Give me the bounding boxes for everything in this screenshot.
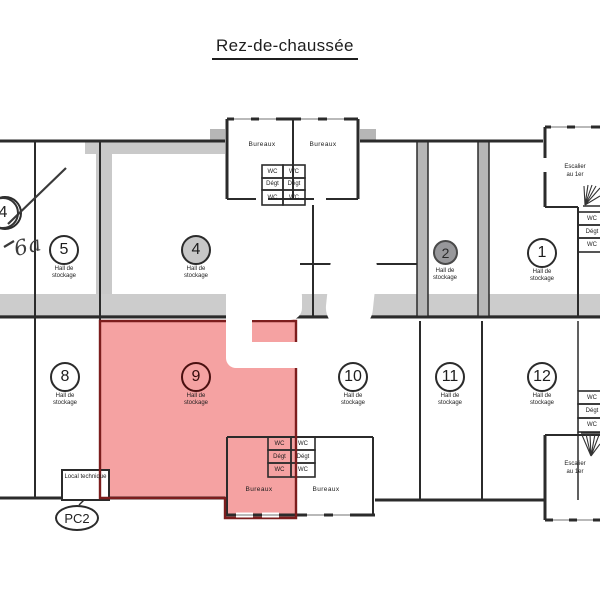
hall-label-8: Hall de stockage	[46, 393, 84, 407]
bureaux-label-bottom-left: Bureaux	[233, 486, 285, 493]
hall-label-2: Hall de stockage	[426, 268, 464, 282]
hall-label-5: Hall de stockage	[45, 266, 83, 280]
wc-cell: WC	[291, 437, 315, 450]
stairs-label-bottom-right: Escalier au 1er	[552, 461, 598, 476]
handwritten-note: 6a	[12, 231, 45, 261]
wc-cell: WC	[283, 190, 305, 205]
hall-label-1: Hall de stockage	[523, 269, 561, 283]
watermark-shape	[226, 342, 312, 368]
watermark-shape	[324, 244, 380, 332]
room-circle-12: 12	[527, 362, 557, 392]
hall-label-12: Hall de stockage	[523, 393, 561, 407]
wc-cell: WC	[578, 418, 600, 432]
stairs-label-line2: au 1er	[552, 469, 598, 477]
deg-cell: Dégt	[578, 404, 600, 418]
wc-cell: WC	[268, 437, 291, 450]
hall-label-11: Hall de stockage	[431, 393, 469, 407]
wc-cell: WC	[578, 238, 600, 252]
room-circle-4: 4	[181, 235, 211, 265]
room-circle-4-crossed: 4	[0, 197, 19, 229]
wc-cell: WC	[262, 165, 283, 178]
stairs-label-line1: Escalier	[552, 164, 598, 172]
stairs-label-top-right: Escalier au 1er	[552, 164, 598, 179]
stairs-label-line2: au 1er	[552, 172, 598, 180]
room-circle-1: 1	[527, 238, 557, 268]
room-circle-5: 5	[49, 235, 79, 265]
room-circle-10: 10	[338, 362, 368, 392]
room-circle-8: 8	[50, 362, 80, 392]
wall-shading-left-vertical	[96, 142, 112, 316]
hall-label-9: Hall de stockage	[177, 393, 215, 407]
bureaux-label-top-right: Bureaux	[297, 141, 349, 148]
wall-shading-room2-left	[417, 142, 428, 316]
local-technique-label: Local technique	[62, 474, 109, 482]
wall-shading-block-right	[360, 129, 376, 141]
deg-cell: Dégt	[578, 225, 600, 238]
wc-cell: WC	[283, 165, 305, 178]
hall-label-4: Hall de stockage	[177, 266, 215, 280]
room-circle-9: 9	[181, 362, 211, 392]
bureaux-label-top-left: Bureaux	[236, 141, 288, 148]
wc-cell: WC	[268, 463, 291, 477]
room-circle-2: 2	[433, 240, 458, 265]
stairs-label-line1: Escalier	[552, 461, 598, 469]
watermark-shape	[226, 284, 302, 320]
deg-cell: Dégt	[268, 450, 291, 463]
wc-cell: WC	[262, 190, 283, 205]
wc-cell: WC	[578, 391, 600, 404]
hall-label-10: Hall de stockage	[334, 393, 372, 407]
wall-shading-room2-right	[478, 142, 489, 316]
bureaux-label-bottom-right: Bureaux	[300, 486, 352, 493]
wc-cell: WC	[578, 212, 600, 225]
pc2-circle: PC2	[55, 505, 99, 531]
deg-cell: Dégt	[283, 178, 305, 190]
wall-shading-block-left	[210, 129, 225, 141]
room-circle-11: 11	[435, 362, 465, 392]
wc-cell: WC	[291, 463, 315, 477]
page-title: Rez-de-chaussée	[212, 36, 358, 60]
deg-cell: Dégt	[291, 450, 315, 463]
floor-plan-page: Rez-de-chaussée	[0, 0, 600, 600]
deg-cell: Dégt	[262, 178, 283, 190]
